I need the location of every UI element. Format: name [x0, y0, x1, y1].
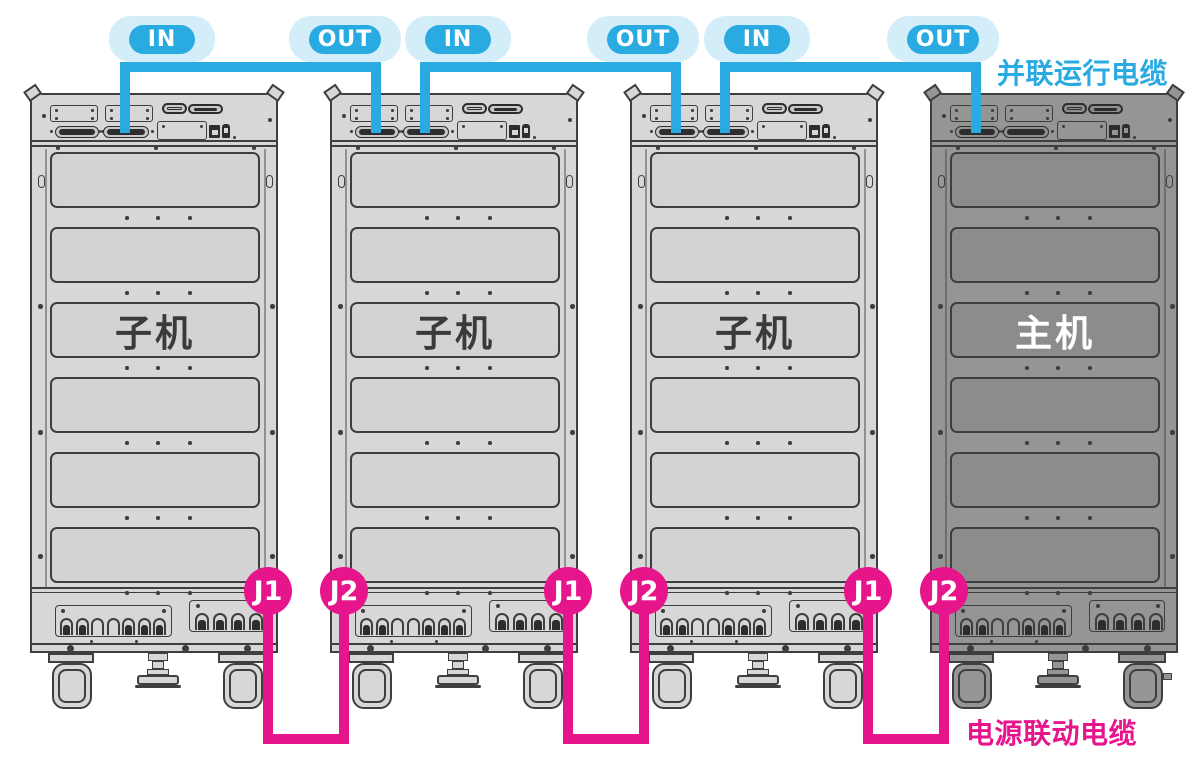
wiring-diagram-canvas: 子机子机子机主机 INOUTINOUTINOUTJ1J2J1J2J1J2 并联运… — [0, 0, 1200, 770]
in-badge: IN — [425, 25, 491, 54]
out-badge: OUT — [607, 25, 679, 54]
parallel-cable-drop-in — [720, 62, 730, 133]
parallel-cable-run — [420, 62, 681, 72]
parallel-cable-label: 并联运行电缆 — [997, 52, 1168, 92]
power-link-cable-drop-j2 — [339, 596, 349, 744]
in-badge: IN — [129, 25, 195, 54]
parallel-cable-drop-out — [971, 62, 981, 133]
parallel-cable-run — [120, 62, 381, 72]
parallel-cable-drop-out — [371, 62, 381, 133]
parallel-cable-drop-in — [120, 62, 130, 133]
power-link-cable-drop-j1 — [863, 596, 873, 744]
out-badge: OUT — [309, 25, 381, 54]
in-badge: IN — [724, 25, 790, 54]
cables-layer: INOUTINOUTINOUTJ1J2J1J2J1J2 — [0, 0, 1200, 770]
power-link-cable-drop-j1 — [263, 596, 273, 744]
parallel-cable-drop-out — [671, 62, 681, 133]
j1-badge: J1 — [244, 567, 292, 615]
power-link-cable-drop-j2 — [939, 596, 949, 744]
parallel-cable-run — [720, 62, 981, 72]
power-link-cable-drop-j1 — [563, 596, 573, 744]
j2-badge: J2 — [620, 567, 668, 615]
j1-badge: J1 — [844, 567, 892, 615]
power-link-cable-run — [263, 734, 349, 744]
parallel-cable-drop-in — [420, 62, 430, 133]
power-link-cable-label: 电源联动电缆 — [966, 712, 1137, 752]
power-link-cable-run — [863, 734, 949, 744]
j2-badge: J2 — [320, 567, 368, 615]
power-link-cable-drop-j2 — [639, 596, 649, 744]
j2-badge: J2 — [920, 567, 968, 615]
power-link-cable-run — [563, 734, 649, 744]
out-badge: OUT — [907, 25, 979, 54]
j1-badge: J1 — [544, 567, 592, 615]
